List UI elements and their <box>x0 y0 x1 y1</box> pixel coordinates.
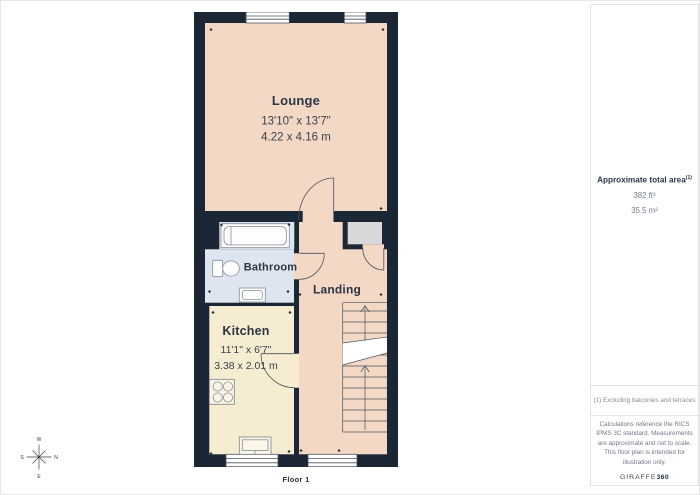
kitchen-door-opening <box>294 354 299 388</box>
compass-n: N <box>54 455 58 461</box>
bathroom-label: Bathroom <box>244 262 298 274</box>
footnote-text: (1) Excluding balconies and terraces <box>594 397 696 404</box>
footnote-section: (1) Excluding balconies and terraces <box>591 385 698 415</box>
giraffe360-logo: GIRAFFE360 <box>620 474 669 481</box>
total-area-title: Approximate total area(1) <box>597 175 692 185</box>
closet-floor <box>348 222 382 244</box>
total-area-title-text: Approximate total area <box>597 176 686 185</box>
lounge-label: Lounge <box>272 93 320 108</box>
disclaimer-text: Calculations reference the RICS IPMS 3C … <box>596 420 693 467</box>
brand-name: GIRAFFE <box>620 474 656 481</box>
kitchen-label: Kitchen <box>222 324 269 338</box>
lounge-dims-imperial: 13'10" x 13'7" <box>261 116 330 128</box>
floorplan-page: Lounge 13'10" x 13'7" 4.22 x 4.16 m Bath… <box>0 0 700 495</box>
brand-number: 360 <box>656 474 669 481</box>
window-bottom-left <box>226 454 278 466</box>
lounge-door-opening <box>303 211 334 223</box>
kitchen-dims-metric: 3.38 x 2.01 m <box>214 360 278 372</box>
landing-label: Landing <box>313 283 361 297</box>
total-area-footnote-ref: (1) <box>686 175 692 181</box>
window-top-left <box>246 12 289 23</box>
total-area-section: Approximate total area(1) 382 ft² 35.5 m… <box>591 5 698 385</box>
stove-icon <box>209 379 234 404</box>
total-area-ft: 382 ft² <box>633 191 655 200</box>
compass-s: S <box>20 455 24 461</box>
bathtub-icon <box>221 224 289 248</box>
total-area-m: 35.5 m² <box>631 206 657 215</box>
info-panel: Approximate total area(1) 382 ft² 35.5 m… <box>590 4 699 486</box>
lounge-dims-metric: 4.22 x 4.16 m <box>261 132 331 144</box>
compass-w: W <box>37 437 42 443</box>
toilet-icon <box>213 260 240 276</box>
floor-label: Floor 1 <box>194 475 398 484</box>
window-top-right <box>344 12 366 23</box>
kitchen-sink-icon <box>239 437 271 454</box>
disclaimer-section: Calculations reference the RICS IPMS 3C … <box>591 415 698 485</box>
floorplan-drawing: Lounge 13'10" x 13'7" 4.22 x 4.16 m Bath… <box>194 12 398 467</box>
closet-door-opening <box>363 244 384 249</box>
window-bottom-right <box>308 454 357 466</box>
kitchen-dims-imperial: 11'1" x 6'7" <box>221 344 272 356</box>
compass-icon: W E S N <box>18 433 60 479</box>
bathroom-sink-icon <box>239 288 265 302</box>
compass-e: E <box>37 474 41 479</box>
